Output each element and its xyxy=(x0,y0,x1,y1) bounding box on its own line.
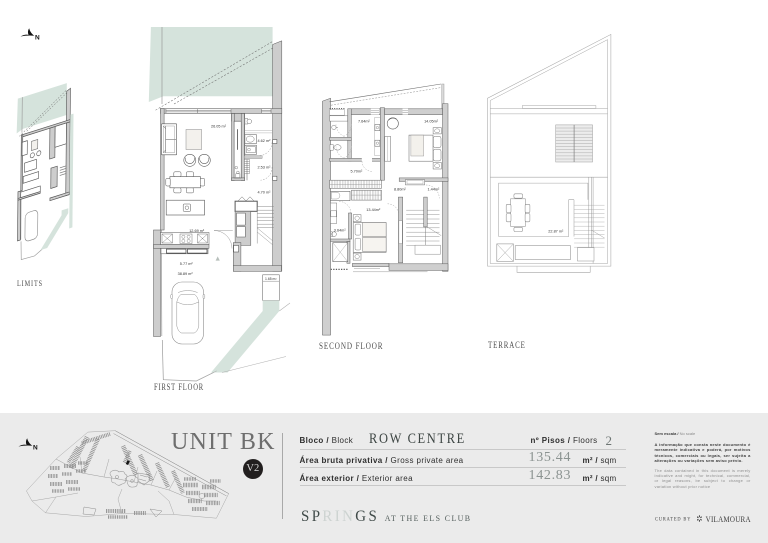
svg-text:26.05 m²: 26.05 m² xyxy=(211,125,227,129)
svg-text:38.89 m²: 38.89 m² xyxy=(178,272,194,276)
svg-text:4.62 m²: 4.62 m² xyxy=(258,139,272,143)
svg-text:2.53 m²: 2.53 m² xyxy=(258,165,272,169)
svg-text:1.44m²: 1.44m² xyxy=(428,188,441,192)
svg-text:5.70m²: 5.70m² xyxy=(351,169,364,173)
svg-text:1.65 m²: 1.65 m² xyxy=(265,277,277,281)
svg-text:5.77 m²: 5.77 m² xyxy=(180,262,194,266)
svg-text:22.87 m²: 22.87 m² xyxy=(548,230,564,234)
svg-text:8.80m²: 8.80m² xyxy=(394,188,407,192)
svg-text:4.70 m²: 4.70 m² xyxy=(258,190,272,194)
svg-text:3.64m²: 3.64m² xyxy=(334,228,347,232)
svg-text:N: N xyxy=(35,35,40,42)
svg-text:12.69 m²: 12.69 m² xyxy=(189,229,205,233)
svg-text:7.64m²: 7.64m² xyxy=(358,120,371,124)
svg-text:14.05m²: 14.05m² xyxy=(424,120,439,124)
svg-text:13.44m²: 13.44m² xyxy=(366,208,381,212)
